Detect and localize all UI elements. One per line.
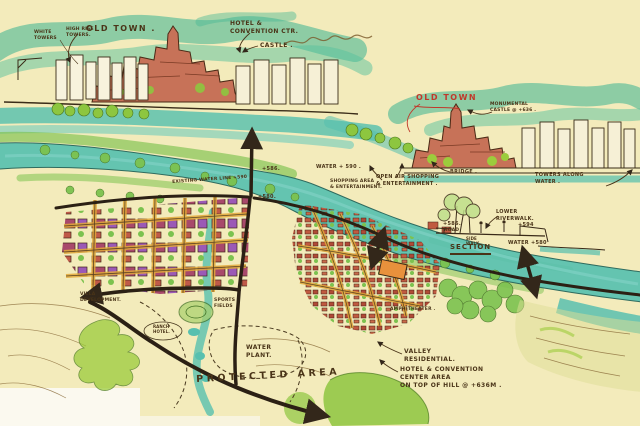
label-ranch-hotel: RANCH HOTEL. [153, 324, 170, 334]
label-amphitheater: AMPHITHEATER . [390, 307, 435, 313]
label-section-water-level: WATER +580 [508, 240, 547, 247]
label-shopping-area: SHOPPING AREA & ENTERTAINMENT. [330, 179, 382, 191]
label-hotel-convention: HOTEL & CONVENTION CTR. [230, 20, 298, 36]
label-white-towers: WHITE TOWERS [34, 30, 57, 42]
masterplan-sketch-scan: OLD TOWN . HOTEL & CONVENTION CTR. CASTL… [0, 0, 640, 426]
label-water-plant: WATER PLANT. [246, 344, 272, 360]
label-lower-riverwalk: LOWER RIVERWALK. [496, 209, 534, 222]
label-level-586: +586. [262, 166, 280, 173]
label-section-road: ROAD [444, 228, 459, 234]
label-level-580: +580. [258, 194, 276, 201]
label-hotel-convention-area: HOTEL & CONVENTION CENTER AREA ON TOP OF… [400, 366, 502, 389]
label-old-town-top: OLD TOWN . [86, 24, 156, 34]
sketch-drawing [0, 0, 640, 426]
label-section-road-level: +586. [443, 221, 461, 228]
label-section-594: +594 [518, 222, 534, 229]
label-monumental-castle: MONUMENTAL CASTLE @ +636 . [490, 102, 536, 114]
label-bridge: BRIDGE . [450, 169, 477, 176]
label-towers-along-water: TOWERS ALONG WATER . [535, 172, 584, 185]
label-water-590: WATER + 590 . [316, 164, 361, 171]
label-old-town-right: OLD TOWN [416, 93, 477, 103]
label-section-title: SECTION [450, 243, 491, 255]
label-castle: CASTLE . [260, 42, 293, 50]
label-high-rise-towers: HIGH RISE TOWERS. [66, 27, 94, 39]
label-valley-residential: VALLEY RESIDENTIAL. [404, 348, 455, 364]
label-sports-fields: SPORTS FIELDS [214, 298, 235, 310]
label-open-air-shopping: OPEN AIR SHOPPING & ENTERTAINMENT . [376, 174, 439, 187]
label-villa-development: VILLA DEVELOPMENT. [80, 292, 121, 304]
